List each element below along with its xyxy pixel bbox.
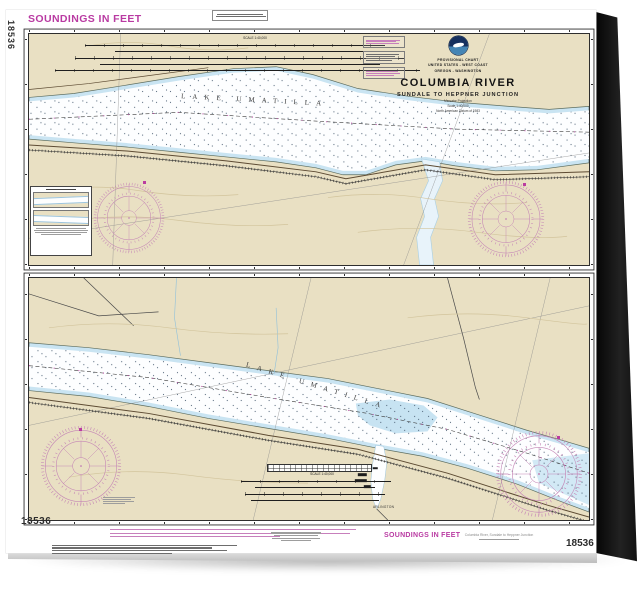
chart-subtitle: SUNDALE TO HEPPNER JUNCTION — [397, 92, 519, 98]
chart-states: OREGON - WASHINGTON — [434, 69, 481, 73]
chart-type: PROVISIONAL CHART — [437, 58, 478, 62]
noaa-logo-icon — [449, 36, 468, 55]
chart-title: COLUMBIA RIVER — [400, 77, 515, 89]
town-label: ARLINGTON — [373, 505, 394, 509]
graduation-ticks — [29, 267, 589, 270]
magenta-marker — [79, 428, 82, 431]
margin-note-black — [52, 543, 242, 556]
compass-rose-icon — [92, 181, 166, 255]
scale-bars: SCALE 1:40,000 — [237, 464, 407, 501]
compass-rose — [92, 181, 166, 255]
compass-rose — [494, 429, 584, 519]
scale-line: Scale 1:40,000 — [447, 104, 468, 108]
product-caption-text: Columbia River, Sundale to Heppner Junct… — [459, 533, 539, 538]
product-photo: { "colors": { "land": "#e9e0c3", "water"… — [0, 0, 637, 590]
tributary-river — [417, 159, 443, 265]
soundings-note-bottom: SOUNDINGS IN FEET — [384, 532, 460, 539]
chart-number-bottom-left: 18536 — [21, 516, 51, 527]
chart-note-small — [103, 496, 137, 505]
product-caption: Columbia River, Sundale to Heppner Junct… — [459, 533, 539, 541]
streams — [174, 278, 278, 374]
datum-line: North American Datum of 1983 — [436, 109, 480, 113]
magenta-marker — [557, 436, 560, 439]
nautical-chart-sheet: SOUNDINGS IN FEET 18536 — [6, 10, 596, 553]
magenta-marker — [523, 183, 526, 186]
continuation-inset — [30, 186, 92, 256]
compass-rose-icon — [494, 429, 584, 519]
chart-panel-top: SCALE 1:40,000 PROVISIONAL CHART UNITED … — [28, 33, 590, 266]
graduation-ticks — [25, 34, 28, 265]
graduation-ticks — [25, 278, 28, 520]
chart-number-bottom-right: 18536 — [566, 538, 594, 549]
magenta-marker — [143, 181, 146, 184]
scale-label: SCALE 1:40,000 — [237, 472, 407, 476]
chart-number-side: 18536 — [6, 20, 16, 50]
graduation-ticks — [29, 274, 589, 277]
projection-line: Mercator Projection — [444, 99, 472, 103]
publisher-note — [270, 531, 322, 543]
title-block: PROVISIONAL CHART UNITED STATES - WEST C… — [383, 36, 533, 113]
inset-map-strip — [33, 192, 89, 208]
chart-panel-bottom: LAKE UMATILLA — [28, 277, 590, 521]
graduation-ticks — [591, 34, 594, 265]
graduation-ticks — [591, 278, 594, 520]
feet-scale-grid — [267, 464, 372, 472]
graduation-ticks — [29, 30, 589, 33]
inset-map-strip — [33, 210, 89, 226]
canvas-side-edge — [596, 12, 637, 564]
soundings-note-top: SOUNDINGS IN FEET — [28, 13, 142, 25]
compass-rose — [466, 179, 546, 259]
chart-region: UNITED STATES - WEST COAST — [428, 63, 488, 67]
margin-note-box — [212, 10, 268, 21]
graduation-ticks — [29, 522, 589, 525]
compass-rose-icon — [466, 179, 546, 259]
